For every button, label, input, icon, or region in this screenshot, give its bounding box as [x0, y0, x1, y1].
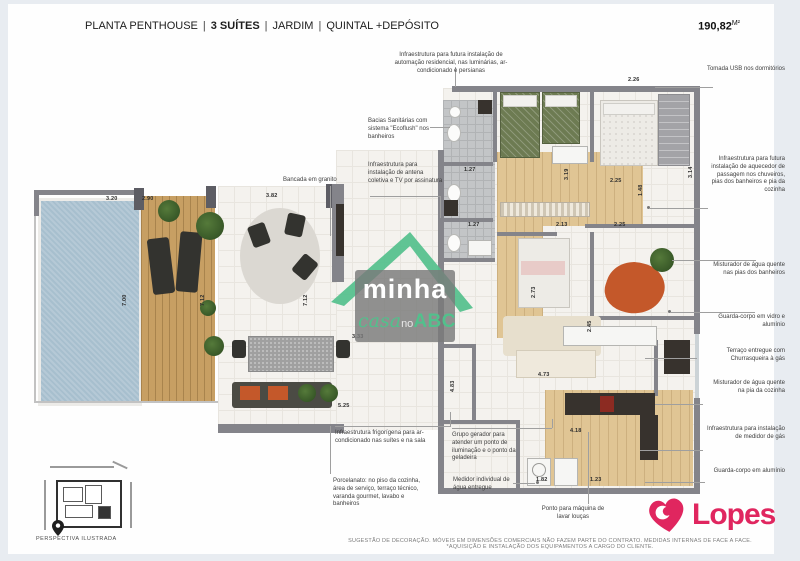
area-unit: M²: [732, 20, 740, 27]
callout-gerador: Grupo gerador para atender um ponto de i…: [452, 432, 522, 463]
leader-line: [330, 186, 331, 236]
runner-rug: [500, 202, 590, 217]
suite-count: 3 SUÍTES: [211, 20, 260, 32]
area-value: 190,82: [698, 21, 732, 33]
laundry-sink: [554, 458, 578, 486]
cooktop: [600, 396, 614, 412]
map-building-block: [56, 480, 122, 528]
wall-pillar: [206, 186, 216, 208]
divider: |: [260, 20, 273, 32]
single-bed: [542, 92, 580, 144]
dimension-label: 5.25: [338, 403, 350, 409]
area-label: 190,82M²: [698, 20, 740, 33]
wall-segment: [34, 190, 142, 195]
map-street: [50, 466, 114, 468]
potted-plant: [298, 384, 316, 402]
outdoor-border-line: [34, 195, 36, 403]
location-pin-icon: [52, 520, 64, 536]
heart-icon: [643, 491, 690, 538]
dining-chair: [232, 340, 246, 358]
dimension-label: 3.14: [688, 166, 694, 178]
watermark-row2: casanoABC: [351, 310, 463, 333]
desk: [552, 146, 588, 164]
leader-line: [645, 482, 705, 483]
callout-bancada: Bancada em granito: [283, 177, 343, 185]
leader-line: [645, 358, 697, 359]
kitchen-counter: [640, 415, 658, 460]
wall-segment: [694, 86, 700, 334]
plant: [196, 212, 224, 240]
leader-line: [370, 196, 440, 197]
bed-pillow: [545, 95, 577, 107]
bed-pillow: [603, 103, 655, 115]
callout-porcelanato: Porcelanato: no piso da cozinha, área de…: [333, 478, 425, 509]
bathroom-sink: [449, 106, 461, 118]
living-sofa: [516, 350, 596, 378]
watermark-word2: casa: [358, 310, 401, 332]
map-tower: [98, 506, 111, 519]
dimension-label: 2.13: [556, 222, 568, 228]
leader-line: [650, 208, 708, 209]
feature-quintal: QUINTAL +DEPÓSITO: [326, 20, 439, 32]
map-building: [63, 487, 83, 502]
shower: [478, 100, 492, 114]
wall-segment: [34, 190, 39, 216]
map-street: [112, 461, 127, 470]
map-building: [85, 485, 102, 504]
watermark-word3: no: [401, 318, 413, 330]
shower: [444, 200, 458, 216]
wall-segment: [694, 398, 700, 494]
dimension-label: 2.45: [587, 320, 593, 332]
callout-frigorigena: Infraestrutura frigorígena para ar-condi…: [335, 430, 453, 446]
plant: [650, 248, 674, 272]
dimension-label: 1.23: [590, 477, 602, 483]
bed-throw: [521, 261, 565, 275]
wall-segment: [590, 92, 594, 162]
dimension-label: 2.73: [531, 286, 537, 298]
leader-line: [655, 404, 703, 405]
leader-line: [430, 127, 450, 128]
wall-segment: [493, 92, 497, 162]
map-building: [65, 505, 93, 518]
wall-segment: [218, 424, 344, 433]
plant: [158, 200, 180, 222]
leader-line: [552, 419, 553, 428]
floor-plan-page: PLANTA PENTHOUSE|3 SUÍTES|JARDIM|QUINTAL…: [0, 0, 800, 561]
wall-segment: [585, 224, 697, 228]
callout-guarda-corpo-aluminio: Guarda-corpo em alumínio: [710, 468, 785, 476]
dimension-label: 2.25: [614, 222, 626, 228]
dimension-label: 2.26: [628, 77, 640, 83]
leader-line: [655, 87, 713, 88]
callout-guarda-corpo-vidro: Guarda-corpo em vidro e alumínio: [710, 314, 785, 330]
watermark-logo: minha casanoABC: [325, 226, 480, 351]
map-street: [44, 480, 46, 530]
dimension-label: 4.18: [570, 428, 582, 434]
dimension-label: 1.48: [638, 184, 644, 196]
callout-misturador-cozinha: Misturador de água quente na pia da cozi…: [705, 380, 785, 396]
dimension-label: 3.82: [266, 193, 278, 199]
callout-ecoflush: Bacias Sanitárias com sistema "Ecoflush"…: [368, 118, 432, 141]
wall-segment: [472, 344, 476, 424]
leader-line: [330, 426, 331, 474]
site-map: PERSPECTIVA ILUSTRADA: [36, 452, 156, 544]
leader-line: [335, 426, 451, 427]
leader-dot: [647, 206, 650, 209]
dimension-label: 7.00: [122, 294, 128, 306]
potted-plant: [320, 384, 338, 402]
divider: |: [198, 20, 211, 32]
barbecue-grill: [664, 340, 690, 374]
divider: |: [313, 20, 326, 32]
leader-line: [440, 196, 441, 218]
leader-line: [671, 312, 755, 313]
leader-line: [640, 450, 703, 451]
plant: [204, 336, 224, 356]
lopes-logo: Lopes: [646, 492, 775, 538]
dimension-label: 1.27: [464, 167, 476, 173]
wardrobe: [658, 94, 690, 166]
leader-line: [513, 483, 535, 484]
washer-door: [532, 463, 546, 477]
leader-line: [588, 432, 589, 504]
callout-aquecedor: Infraestrutura para futura instalação de…: [705, 156, 785, 195]
header-bar: PLANTA PENTHOUSE|3 SUÍTES|JARDIM|QUINTAL…: [85, 20, 765, 36]
wall-segment: [654, 340, 658, 396]
suite-bed: [518, 238, 570, 308]
callout-medidor-agua: Medidor individual de água entregue: [453, 477, 511, 493]
bed-pillow: [503, 95, 537, 107]
dimension-label: 4.73: [538, 372, 550, 378]
leader-dot: [536, 481, 539, 484]
disclaimer-text: SUGESTÃO DE DECORAÇÃO. MÓVEIS EM DIMENSÕ…: [335, 538, 765, 550]
callout-maquina-loucas: Ponto para máquina de lavar louças: [535, 506, 611, 522]
callout-antena: Infraestrutura para instalação de antena…: [368, 162, 444, 185]
dining-table: [248, 336, 334, 372]
dimension-label: 3.20: [106, 196, 118, 202]
leader-line: [452, 428, 552, 429]
plan-title: PLANTA PENTHOUSE: [85, 20, 198, 32]
pool-edge-line: [34, 401, 218, 403]
dimension-label: 7.12: [303, 294, 309, 306]
sofa-cushion: [268, 386, 288, 400]
gourmet-counter: [563, 326, 657, 346]
watermark-word4: ABC: [413, 311, 456, 332]
single-bed: [500, 92, 540, 158]
wall-segment: [443, 162, 493, 166]
dimension-label: 2.25: [610, 178, 622, 184]
dimension-label: 7.12: [200, 294, 206, 306]
wall-segment: [497, 232, 557, 236]
callout-automacao: Infraestrutura para futura instalação de…: [385, 52, 517, 75]
dimension-label: 4.83: [450, 380, 456, 392]
sofa-cushion: [240, 386, 260, 400]
map-street: [130, 482, 132, 528]
callout-terraco-churrasqueira: Terraço entregue com Churrasqueira à gás: [700, 348, 785, 364]
watermark-word1: minha: [355, 274, 455, 305]
feature-jardim: JARDIM: [273, 20, 314, 32]
map-caption: PERSPECTIVA ILUSTRADA: [36, 536, 117, 542]
leader-line: [672, 260, 756, 261]
callout-tomada-usb: Tomada USB nos dormitórios: [705, 66, 785, 74]
leader-line: [450, 412, 451, 426]
master-bed: [600, 100, 658, 166]
brand-name: Lopes: [692, 498, 775, 532]
callout-misturador-banheiros: Misturador de água quente nas pias dos b…: [703, 262, 785, 278]
leader-dot: [668, 310, 671, 313]
callout-medidor-gas: Infraestrutura para instalação de medido…: [705, 426, 785, 442]
terrace-guardrail: [695, 334, 699, 398]
dimension-label: 2.90: [142, 196, 154, 202]
dimension-label: 3.19: [564, 168, 570, 180]
